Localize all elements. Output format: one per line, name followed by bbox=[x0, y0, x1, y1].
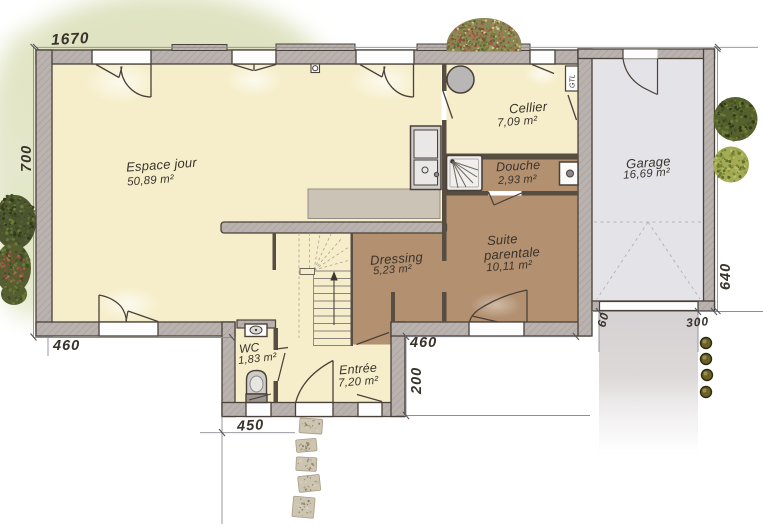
svg-text:Douche: Douche bbox=[496, 158, 541, 174]
svg-text:GTL: GTL bbox=[570, 74, 577, 88]
svg-text:200: 200 bbox=[409, 367, 425, 395]
svg-text:300: 300 bbox=[686, 314, 710, 330]
svg-text:460: 460 bbox=[409, 335, 437, 351]
svg-text:1670: 1670 bbox=[51, 30, 90, 49]
svg-text:2,93 m²: 2,93 m² bbox=[497, 173, 537, 187]
svg-text:460: 460 bbox=[52, 338, 80, 354]
svg-text:640: 640 bbox=[718, 263, 734, 290]
svg-text:700: 700 bbox=[19, 145, 35, 172]
svg-text:Cellier: Cellier bbox=[508, 99, 548, 117]
svg-text:450: 450 bbox=[236, 417, 265, 434]
